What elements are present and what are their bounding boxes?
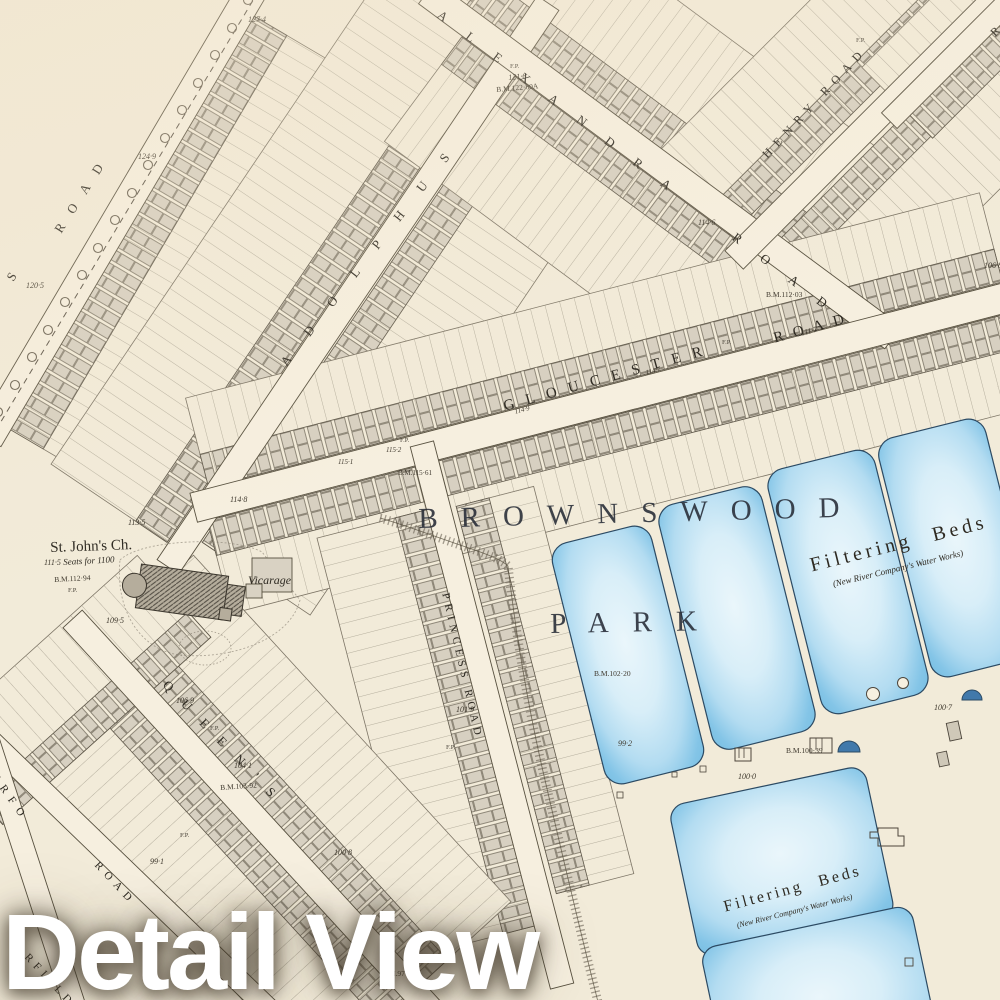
road-label-henry: HENRY ROAD [760,44,869,160]
benchmark-label: B.M.102·20 [594,670,631,678]
spot-height: 100·0 [738,773,756,781]
fp-mark: F.P. [210,726,219,733]
church-label: St. John's Ch. [50,538,132,556]
benchmark-label: B.M.103·92 [220,781,257,791]
spot-height: 100·7 [934,704,952,712]
road-label-erfo-fragment: ERFO [0,772,30,824]
spot-height: 115·2 [386,447,401,454]
spot-height: 111·5 [44,559,61,567]
benchmark-label: B.M.115·61 [398,470,432,477]
map-labels: BROWNSWOOD PARK Filtering Beds (New Rive… [0,0,1000,1000]
fp-mark: F.P. [722,340,731,347]
spot-height: 114·9 [514,405,531,416]
spot-height: 106·8 [984,262,1000,270]
overlay-title: Detail View [2,895,537,1000]
fp-mark: F.P. [68,588,77,595]
place-label-park: PARK [550,607,721,639]
spot-height: 99·2 [618,740,632,748]
spot-height: 114·6 [698,219,715,227]
road-label-top-left-s: S [4,270,19,283]
fp-mark: F.P. [446,745,455,752]
road-label-adolphus: ADOLPHUS [278,129,469,368]
spot-height: 127·4 [248,16,266,24]
spot-height: 99·1 [150,858,164,866]
road-label-top-left-road: ROAD [52,150,113,235]
fp-mark: F.P. [180,833,189,840]
fp-mark: F.P. [510,64,519,71]
spot-height: 101·9 [456,706,474,714]
spot-height: 120·5 [26,282,44,290]
spot-height: 106·9 [176,697,194,705]
benchmark-label: B.M.112·94 [54,574,91,583]
place-label-brownswood: BROWNSWOOD [418,493,863,534]
road-label-princess: PRINCESS ROAD [439,592,484,741]
spot-height: 124·9 [138,153,156,161]
spot-height: 109·5 [106,617,124,625]
spot-height: 115·1 [338,459,353,466]
benchmark-label: B.M.100·39 [786,747,823,755]
spot-height: 100·8 [334,849,352,857]
fp-mark: F.P. [856,38,865,45]
spot-height: 114·7 [645,366,662,377]
spot-height: 114·8 [230,496,247,504]
road-label-top-right-r: R [988,24,1000,38]
vicarage-label: Vicarage [248,574,291,586]
church-seats-label: Seats for 1100 [63,555,115,567]
spot-height: 104·1 [234,762,252,770]
benchmark-label: B.M.112·03 [766,291,802,299]
spot-height: 113·5 [128,519,145,527]
road-label-alexandra: ALEXANDRA ROAD [435,8,850,325]
fp-mark: F.P. [400,438,409,445]
spot-height: 121·6 [508,72,527,82]
map-canvas: BROWNSWOOD PARK Filtering Beds (New Rive… [0,0,1000,1000]
road-label-gloucester: GLOUCESTER [502,342,716,415]
